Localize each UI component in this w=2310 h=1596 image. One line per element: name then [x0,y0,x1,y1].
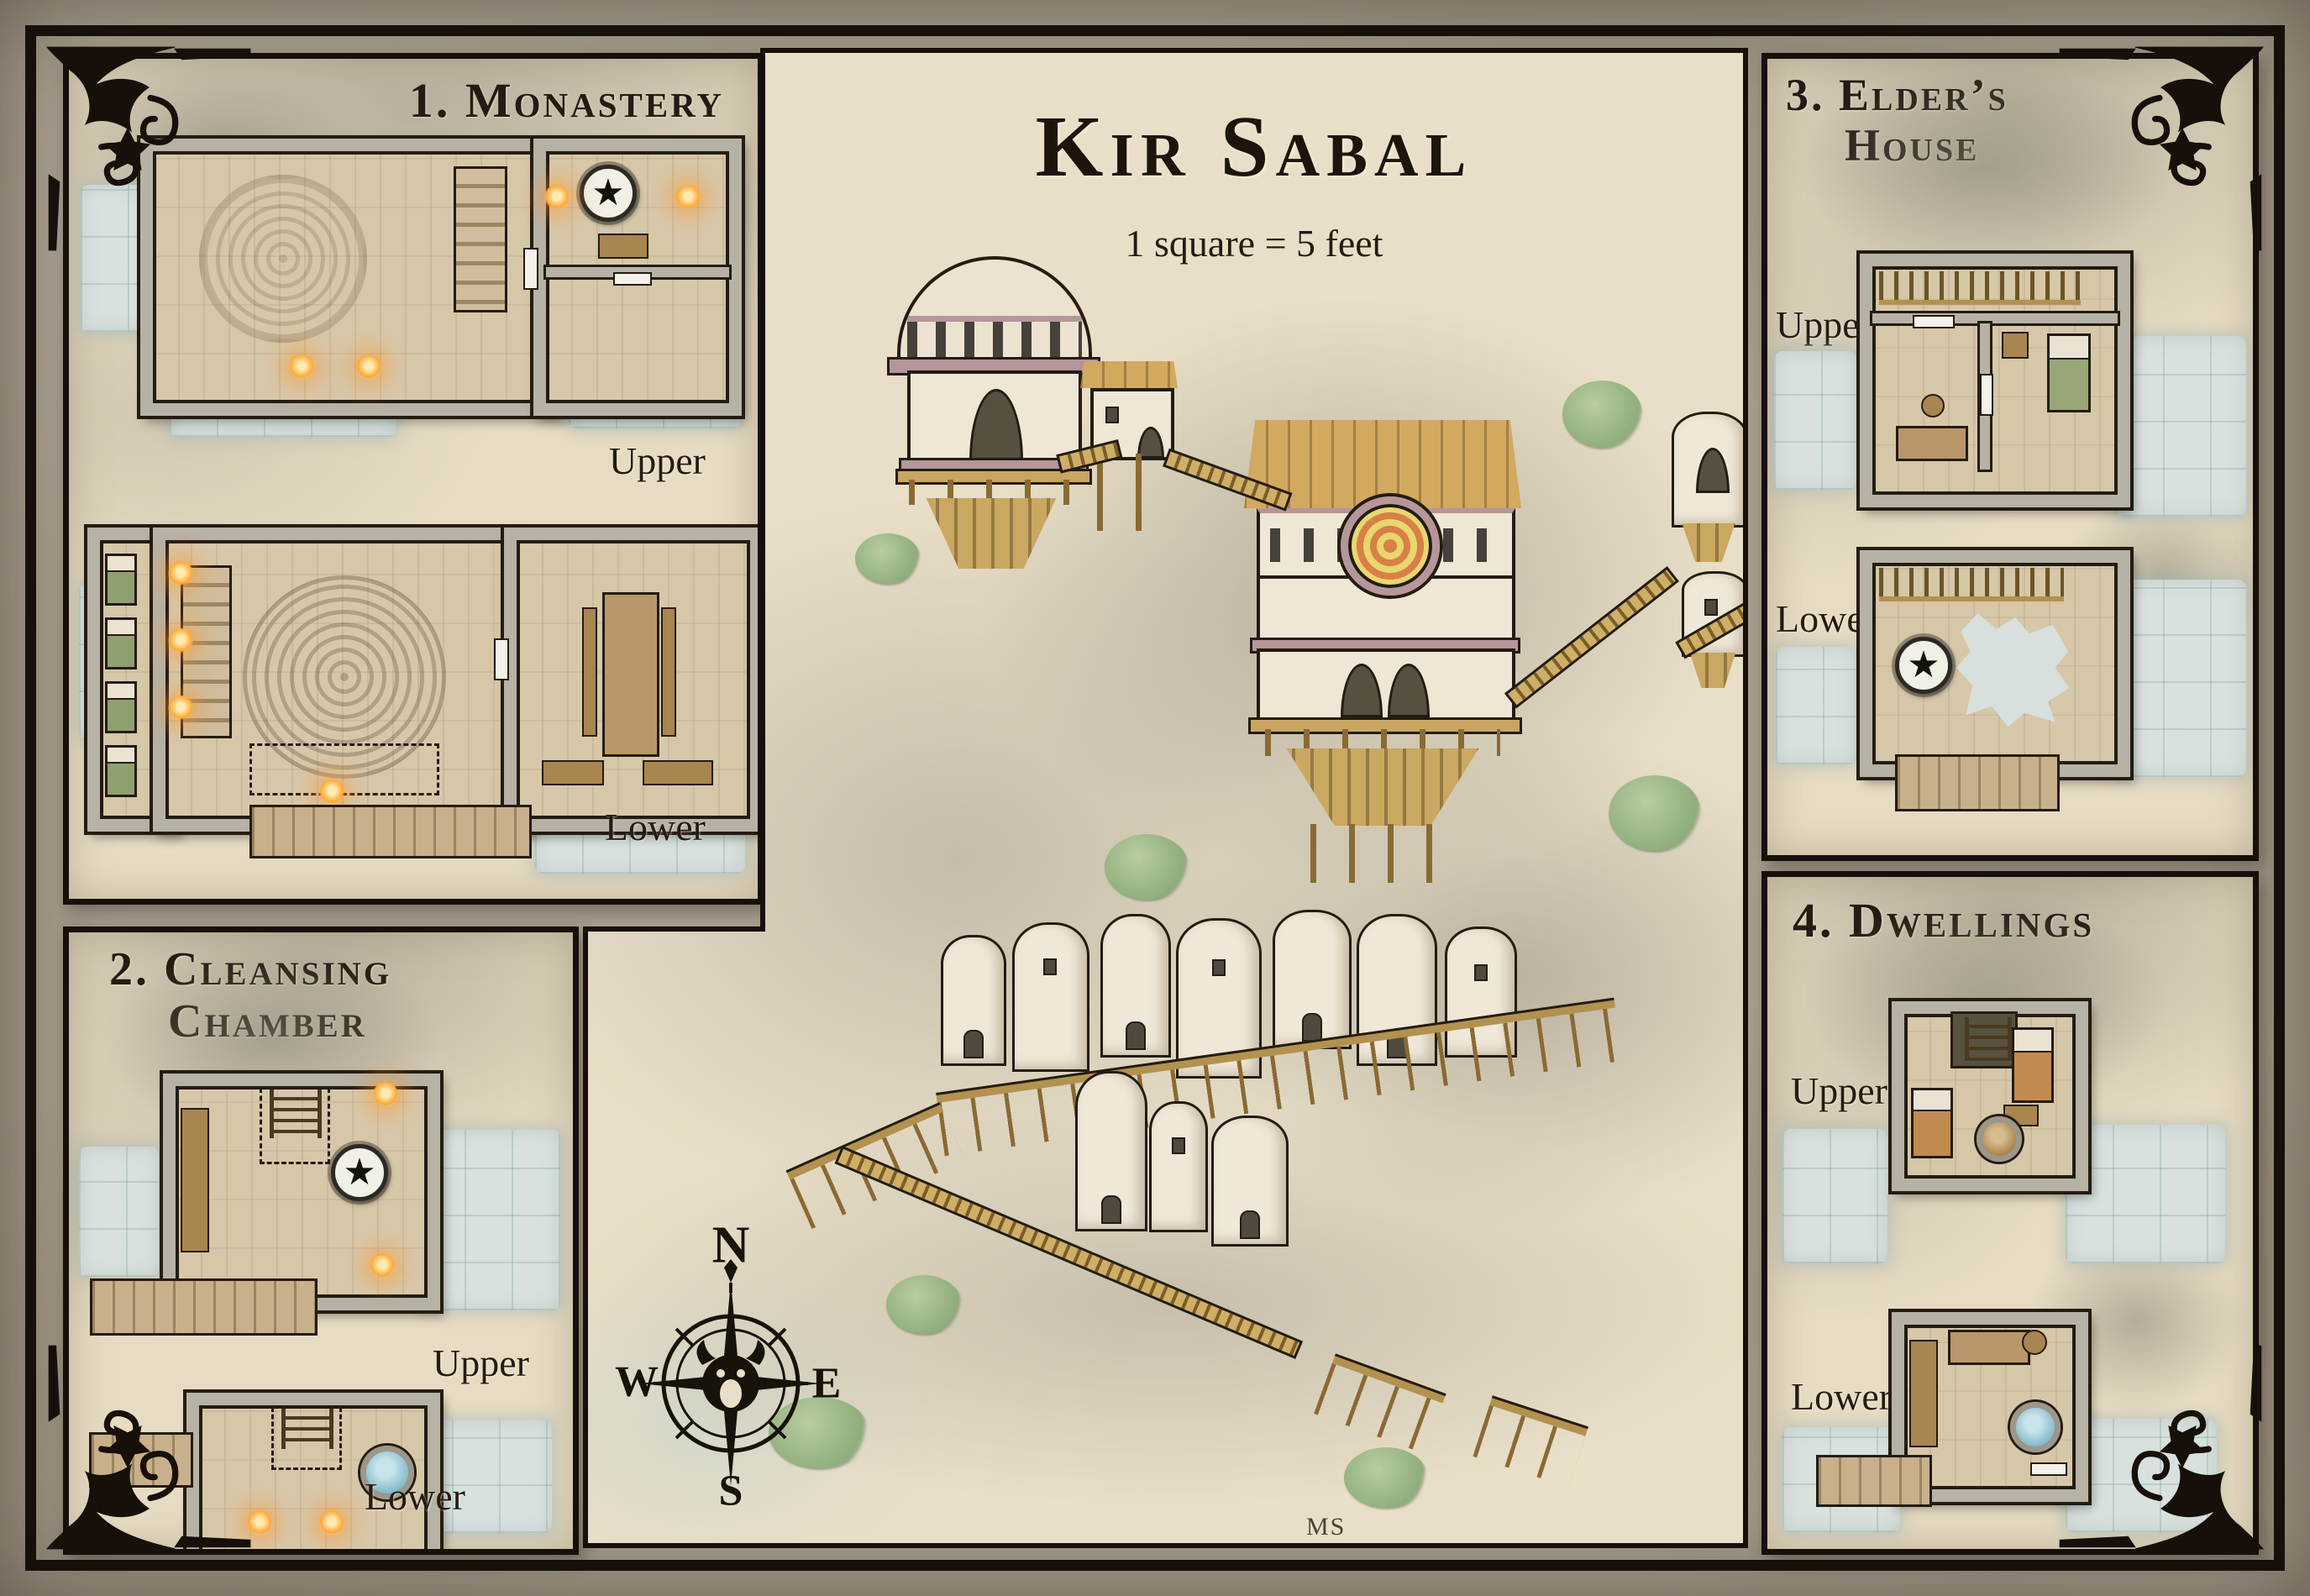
hanging-basket-base [1678,523,1739,562]
workbench [643,760,713,785]
exterior-grid [2116,336,2246,517]
torch-icon [168,696,193,721]
torch-icon [168,628,193,654]
bed [2012,1027,2054,1103]
exterior-grid [1774,351,1856,490]
artist-signature: MS [1306,1513,1346,1541]
bench [582,607,597,737]
map-title: Kir Sabal [765,97,1743,197]
torch-icon [544,185,570,210]
arch-window [1388,664,1430,717]
exterior-grid [79,1147,159,1277]
chest [598,234,648,259]
sleeping-mat [105,617,137,669]
table [1948,1330,2030,1365]
dwelling-tower [1149,1101,1208,1232]
torch-icon [373,1082,398,1107]
door [523,248,538,290]
exterior-grid [2066,1419,2217,1532]
stairs [454,166,507,312]
labyrinth-floor [199,175,367,343]
dwelling-tower [1100,914,1171,1058]
dwelling-tower [1075,1071,1147,1231]
cliff-tower [1672,412,1743,528]
tower-door [1302,1013,1322,1042]
colonnade-windows [907,316,1082,357]
ladder [1965,1017,2012,1061]
walkway-stilts [1473,1405,1585,1488]
monastery-upper-annex [533,139,742,416]
cabinet [181,1108,209,1252]
dwelling-upper-room [1892,1001,2088,1191]
elders-upper-room [1860,254,2130,507]
star-marker: ★ [580,165,637,222]
dwelling-tower [1012,922,1089,1072]
window [1043,958,1057,975]
vegetation [855,533,921,584]
panel-cleansing-chamber: 2. Cleansing Chamber ★ Upper Lower [63,927,579,1555]
long-table [602,592,659,757]
star-icon: ★ [1907,647,1940,684]
dwelling-tower [1211,1116,1289,1247]
bed [2047,333,2091,412]
map-scale-note: 1 square = 5 feet [765,221,1743,265]
labyrinth-emblem [1341,496,1440,596]
dome-roof [897,256,1092,364]
vegetation [886,1275,962,1334]
cleansing-upper-room [163,1074,440,1310]
star-marker: ★ [331,1144,388,1201]
panel-dwellings: 4. Dwellings Upper Lower [1761,871,2259,1555]
compass-north-label: N [712,1216,750,1276]
window [1704,599,1718,616]
wooden-deck [249,805,532,858]
water-basin [2010,1402,2061,1452]
star-icon: ★ [343,1154,375,1191]
torch-icon [319,780,344,805]
dwelling-tower [941,935,1006,1066]
stilts [1097,454,1161,531]
star-marker: ★ [1895,637,1952,694]
monastery-lower-dining [504,528,763,832]
panel-elders-house: 3. Elder’s House Upper Lower ★ [1761,53,2259,861]
torch-icon [675,185,701,210]
balcony-railing [1879,568,2064,601]
hanging-basket-base [1273,748,1492,826]
window [1172,1137,1185,1154]
exterior-grid [1776,647,1856,764]
door [1913,315,1955,328]
vegetation [1105,834,1189,900]
compass-west-label: W [615,1357,659,1407]
stairway [1504,566,1679,709]
stilt-walkway [1489,1395,1588,1436]
floor-label: Upper [609,438,706,483]
tower-door [1240,1210,1260,1239]
door [1980,374,1993,416]
side-table [2002,332,2029,359]
floor-label: Lower [365,1474,465,1519]
map-sheet: 1. Monastery ★ Upper [0,0,2310,1596]
pot [2022,1330,2047,1355]
compass-south-label: S [719,1467,743,1516]
star-icon: ★ [591,175,624,212]
vegetation [1344,1447,1428,1508]
wooden-deck [89,1432,193,1488]
bed [1911,1088,1953,1158]
door [2030,1462,2067,1476]
thatch-roof [1080,361,1178,388]
arch-window [1341,664,1383,717]
exterior-grid [1782,1129,1887,1263]
desk [1896,426,1968,461]
panel-monastery: 1. Monastery ★ Upper [63,53,764,905]
exterior-grid [2066,1125,2225,1263]
workbench [542,760,604,785]
floor-label: Lower [1791,1374,1892,1419]
hanging-basket-base [1687,653,1739,688]
door [494,638,509,680]
stilt-walkway [1332,1353,1446,1403]
interior-wall [1872,313,2118,323]
vegetation [1609,775,1701,851]
window [1212,959,1226,976]
sleeping-mat [105,554,137,606]
wooden-deck [1816,1455,1932,1507]
bench [661,607,676,737]
stilts [1310,824,1453,883]
panel-monastery-title: 1. Monastery [409,76,724,125]
torch-icon [370,1253,395,1278]
basket [1977,1116,2022,1162]
shrine-body [907,370,1082,465]
arch-niche [1696,448,1730,493]
torch-icon [319,1510,344,1536]
exterior-grid [2116,580,2246,777]
torch-icon [289,354,314,380]
ladder-landing [260,1088,330,1164]
wooden-deck [90,1278,318,1336]
compass-east-label: E [812,1359,842,1409]
broken-floor-hole [1956,613,2074,727]
sleeping-mat [105,681,137,733]
floor-label: Upper [433,1341,529,1385]
floor-label: Lower [605,805,706,849]
ladder-landing [271,1407,342,1470]
floor-label: Upper [1791,1068,1887,1113]
floor-label: Upper [1776,302,1872,347]
vegetation [1562,381,1642,448]
lower-facade [1257,648,1515,724]
walkway-stilts [1314,1363,1442,1454]
sleeping-mat [105,745,137,797]
torch-icon [356,354,381,380]
window [1474,964,1488,981]
door [613,272,652,286]
shelf [1909,1340,1938,1447]
dwelling-tower [1273,910,1352,1049]
tower-door [1101,1195,1121,1224]
jug [1921,394,1945,417]
monastery-upper-hall [140,139,560,416]
torch-icon [168,561,193,586]
balcony-railing [1879,271,2081,305]
torch-icon [247,1510,272,1536]
tower-door [1126,1021,1146,1050]
tower-door [963,1030,984,1058]
dashed-area [249,743,439,795]
window [1105,407,1119,423]
hanging-basket-base [917,498,1065,569]
arch-niche [969,389,1023,461]
wooden-deck [1895,754,2060,811]
